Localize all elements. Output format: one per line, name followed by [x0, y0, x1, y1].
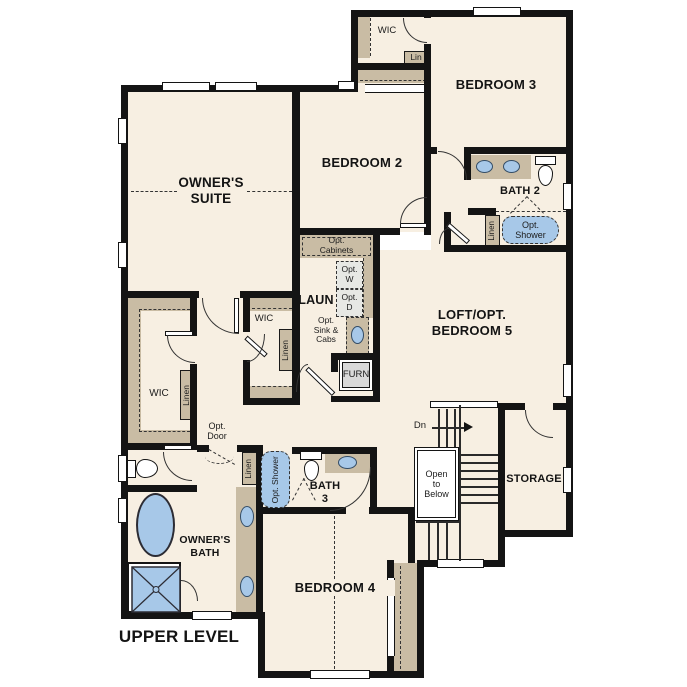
window-left-2 [118, 242, 127, 268]
hall-wic-shelf-top [250, 298, 293, 311]
stair-tread [437, 523, 439, 560]
opt-washer: Opt.W [336, 261, 363, 289]
owners-bath-label: OWNER'SBATH [173, 534, 237, 559]
stair-tread [461, 454, 498, 456]
opt-dryer-label: Opt.D [341, 293, 357, 312]
wall-bedroom4-closet-left-b [387, 656, 394, 678]
hall-wic-dash-top [252, 308, 292, 309]
stairs-down-arrow-head [464, 422, 473, 432]
owners-suite-label: OWNER'SSUITE [151, 175, 271, 207]
window-left-4 [118, 498, 127, 523]
storage-label: STORAGE [503, 473, 565, 486]
owners-toilet-tank [127, 460, 136, 478]
floorplan-upper-level: Lin Linen Linen Opt.W Opt.D Linen Linen [0, 0, 687, 687]
window-left-3 [118, 455, 127, 482]
stair-tread [461, 494, 498, 496]
hall-wic-label: WIC [249, 314, 279, 325]
stair-tread [461, 462, 498, 464]
bedroom2-label: BEDROOM 2 [302, 155, 422, 171]
wall-bath2-row-bottom [444, 245, 573, 252]
stairs-down-arrow-shaft [432, 427, 466, 429]
open-to-below-box: OpentoBelow [414, 447, 459, 521]
wall-wic3-stub [424, 10, 431, 18]
wall-bedroom3-bottom-stub [431, 147, 437, 154]
wall-left [121, 85, 128, 619]
bedroom3-label: BEDROOM 3 [436, 77, 556, 93]
wall-bedroom4-left [258, 614, 265, 678]
bath3-toilet-tank [300, 451, 322, 460]
owners-shower [127, 562, 181, 613]
bath2-sink-left [476, 160, 493, 173]
opt-sink-label: Opt.Sink &Cabs [306, 316, 346, 345]
laundry-sink [351, 326, 364, 344]
wall-bath2-top [464, 147, 566, 154]
bath2-label: BATH 2 [492, 185, 548, 198]
bedroom2-closet-dash [360, 80, 426, 81]
hall-wic-dash-bottom [252, 386, 292, 387]
bath3-linen: Linen [242, 452, 257, 485]
open-to-below-inner: OpentoBelow [417, 450, 456, 518]
wall-furn-right [373, 353, 380, 402]
window-owners-bath-bottom [192, 611, 232, 620]
wall-wic3-under [353, 63, 431, 70]
bath3-linen-label: Linen [245, 459, 254, 479]
lin-label: Lin [410, 53, 421, 63]
wall-laundry-right [373, 235, 380, 360]
wall-bedroom4-right [417, 560, 424, 678]
dash-optwall-shower2 [496, 211, 566, 212]
bedroom4-closet-dash [400, 566, 401, 669]
bedroom2-closet-shelf [358, 70, 428, 83]
furnace-label: FURN [343, 370, 369, 381]
wall-storage-bottom [498, 530, 573, 537]
stair-tread [461, 502, 498, 504]
window-owners-top-1 [162, 82, 210, 91]
wic3-shelf [357, 17, 370, 58]
window-right-2 [563, 364, 572, 397]
wic3-shelf-dash [370, 18, 371, 56]
owners-wic-label: WIC [144, 388, 174, 399]
wall-bath3-right [370, 447, 377, 513]
bedroom2-closet-bypass-doors [365, 84, 424, 93]
stair-tread [428, 523, 430, 560]
bath2-opt-shower-label: Opt.Shower [515, 220, 546, 240]
wall-storage-top-a [505, 403, 525, 410]
bath3-label: BATH3 [303, 480, 347, 506]
wall-storage-left [498, 403, 505, 537]
window-owners-top-2 [215, 82, 257, 91]
wall-toilet-nook [121, 485, 197, 492]
owners-tub [136, 493, 175, 557]
bedroom3-wic-label: WIC [372, 26, 402, 37]
furnace-inner: FURN [342, 362, 370, 388]
opt-cabinets-label: Opt.Cabinets [302, 236, 371, 255]
wall-owners-wic-right-upper [190, 291, 197, 336]
wall-bedroom2-bottom [292, 228, 400, 235]
loft-label: LOFT/OPT.BEDROOM 5 [421, 307, 523, 338]
bath2-sink-right [503, 160, 520, 173]
owners-sink-top [240, 506, 254, 527]
bath2-toilet-tank [535, 156, 556, 165]
opt-dryer: Opt.D [336, 289, 363, 317]
wall-owners-suite-bottom-b [240, 291, 300, 298]
window-left-1 [118, 118, 127, 144]
bedroom4-closet-shelf [394, 563, 417, 672]
nook-door-leaf [164, 445, 192, 450]
bath2-opt-shower: Opt.Shower [502, 216, 559, 244]
wall-furn-bottom [331, 396, 380, 402]
bath3-opt-shower-label: Opt. Shower [271, 456, 281, 503]
wall-bath2-mid-stub [468, 208, 496, 215]
wall-storage-top-b [553, 403, 566, 410]
stairs-down-label: Dn [410, 421, 430, 432]
wall-furn-left-stub [331, 360, 338, 372]
stair-tread [461, 486, 498, 488]
bedroom4-label: BEDROOM 4 [275, 580, 395, 596]
window-bedroom4-bottom [310, 670, 370, 679]
wall-right [566, 10, 573, 537]
stair-landing-rail [430, 401, 498, 408]
wall-top-column-left [351, 10, 358, 92]
laundry-label: LAUN [294, 293, 338, 308]
bath3-opt-shower: Opt. Shower [261, 451, 290, 508]
owners-sink-bottom [240, 576, 254, 597]
stair-tread [461, 478, 498, 480]
wall-bedroom4-closet-left-a [387, 560, 394, 578]
wall-hall-wic-bottom [243, 398, 300, 405]
owners-shower-x [131, 566, 181, 613]
window-bedroom3-top [473, 7, 521, 16]
stair-tread [446, 523, 448, 560]
bath2-linen-label: Linen [488, 221, 497, 241]
wall-top [351, 10, 573, 17]
wall-spine [292, 88, 300, 405]
hall-wic-linen-label: Linen [281, 340, 291, 361]
laundry-side-strip [363, 258, 373, 318]
window-right-1 [563, 183, 572, 210]
window-column-left [338, 81, 355, 90]
upper-level-title: UPPER LEVEL [118, 627, 240, 647]
wall-owners-suite-bottom-a [121, 291, 199, 298]
open-to-below-label: OpentoBelow [424, 469, 449, 499]
wall-owners-wic-right-lower [190, 364, 197, 450]
window-stair-bottom [437, 559, 484, 568]
bath2-linen: Linen [485, 215, 500, 246]
furnace-box: FURN [339, 359, 373, 391]
opt-door-label: Opt.Door [197, 421, 237, 441]
opt-washer-label: Opt.W [341, 265, 357, 284]
stair-tread [461, 470, 498, 472]
hall-wic-linen: Linen [279, 329, 293, 371]
